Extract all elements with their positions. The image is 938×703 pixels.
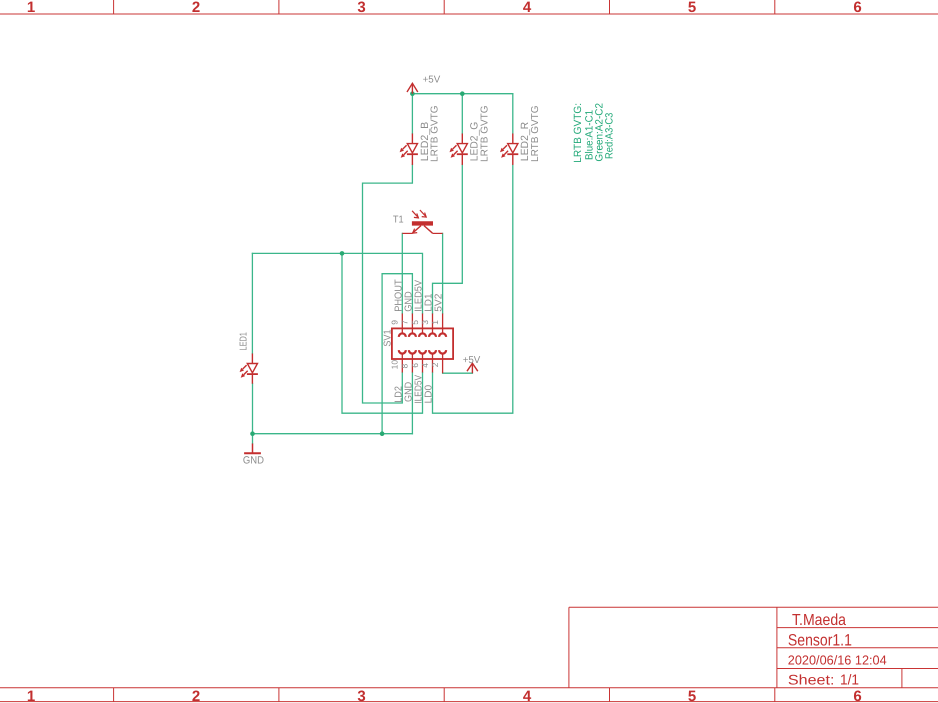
svg-text:LRTB GVTG: LRTB GVTG xyxy=(530,105,541,162)
svg-text:1: 1 xyxy=(27,0,35,16)
svg-text:5V2: 5V2 xyxy=(434,293,445,312)
svg-text:4: 4 xyxy=(523,0,532,16)
svg-text:3: 3 xyxy=(357,0,365,16)
svg-text:5: 5 xyxy=(410,320,420,325)
svg-text:LRTB GVTG:: LRTB GVTG: xyxy=(572,103,584,163)
svg-text:1/1: 1/1 xyxy=(840,672,859,688)
svg-text:3: 3 xyxy=(420,320,430,325)
svg-text:GND: GND xyxy=(243,455,264,467)
svg-text:Sensor1.1: Sensor1.1 xyxy=(788,631,852,649)
svg-text:1: 1 xyxy=(27,688,35,703)
svg-text:6: 6 xyxy=(853,0,861,16)
svg-text:2020/06/16 12:04: 2020/06/16 12:04 xyxy=(788,652,887,667)
svg-text:+5V: +5V xyxy=(423,75,441,86)
svg-text:2: 2 xyxy=(192,688,200,703)
svg-text:1: 1 xyxy=(430,320,440,325)
svg-text:Red:A3-C3: Red:A3-C3 xyxy=(604,112,616,159)
svg-text:6: 6 xyxy=(410,363,420,368)
svg-text:LRTB GVTG: LRTB GVTG xyxy=(429,105,440,162)
svg-text:8: 8 xyxy=(400,364,410,369)
svg-text:Sheet:: Sheet: xyxy=(788,671,835,687)
svg-text:6: 6 xyxy=(853,688,861,703)
svg-text:3: 3 xyxy=(357,688,365,703)
svg-text:5: 5 xyxy=(688,0,696,16)
svg-text:+5V: +5V xyxy=(463,355,481,366)
svg-text:T1: T1 xyxy=(393,215,404,226)
svg-text:LRTB GVTG: LRTB GVTG xyxy=(479,105,490,162)
svg-text:2: 2 xyxy=(430,362,440,367)
svg-text:5: 5 xyxy=(688,688,696,703)
svg-text:2: 2 xyxy=(192,0,200,16)
svg-text:T.Maeda: T.Maeda xyxy=(792,612,846,629)
svg-text:LED1: LED1 xyxy=(238,332,249,351)
svg-text:SV1: SV1 xyxy=(382,329,393,346)
svg-text:4: 4 xyxy=(420,363,430,368)
svg-text:7: 7 xyxy=(400,320,410,325)
svg-text:4: 4 xyxy=(523,688,532,703)
svg-text:10: 10 xyxy=(390,360,400,370)
svg-text:LD0: LD0 xyxy=(424,384,435,403)
svg-text:9: 9 xyxy=(390,320,400,325)
